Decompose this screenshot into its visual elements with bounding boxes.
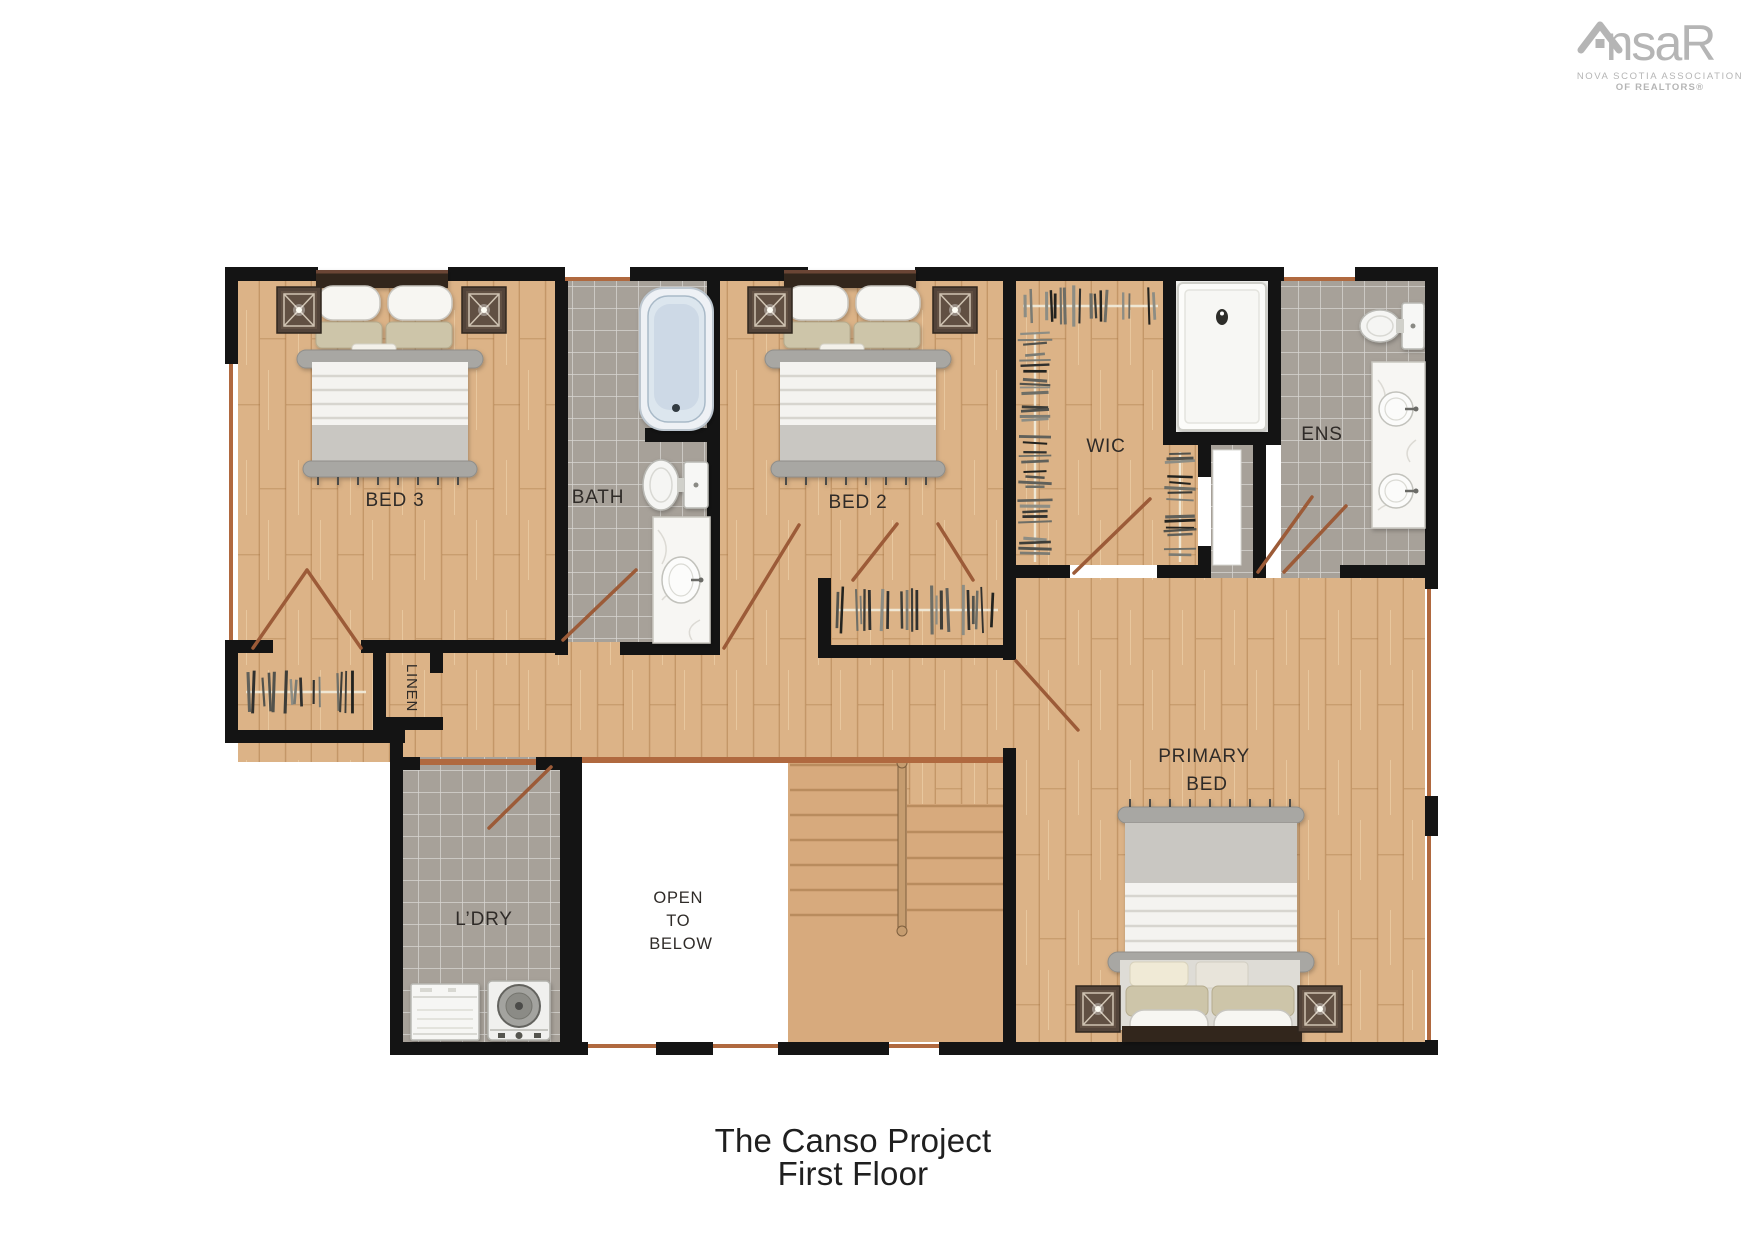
bathtub-icon (640, 288, 713, 430)
nightstand-icon (277, 287, 321, 333)
title-line2: First Floor (778, 1155, 929, 1192)
floor-plan-page: BED 3 BATH BED 2 WIC ENS LINEN L’DRY OPE… (0, 0, 1754, 1240)
washer-icon (411, 984, 479, 1040)
stair-opening-edge (582, 757, 1003, 763)
label-ens: ENS (1301, 424, 1342, 445)
label-ldry: L’DRY (455, 909, 513, 930)
nightstand-icon (1076, 986, 1120, 1032)
label-bed2: BED 2 (829, 492, 888, 513)
logo-text-right: aR (1654, 18, 1714, 68)
nightstand-icon (462, 287, 506, 333)
bed-icon-primary (1108, 799, 1314, 1042)
label-wic: WIC (1086, 436, 1125, 457)
sink-vanity-bath (653, 517, 710, 643)
logo-subline1: NOVA SCOTIA ASSOCIATION (1577, 71, 1743, 82)
floor-plan-svg: BED 3 BATH BED 2 WIC ENS LINEN L’DRY OPE… (0, 0, 1754, 1240)
stair-railing (898, 762, 906, 932)
house-icon (1577, 18, 1623, 54)
title-line1: The Canso Project (715, 1122, 992, 1159)
shower-icon (1178, 283, 1266, 430)
nightstand-icon (748, 287, 792, 333)
sink-vanity-ens (1372, 362, 1425, 528)
nsar-logo-brand: ns aR (1606, 18, 1715, 68)
nsar-logo: ns aR NOVA SCOTIA ASSOCIATION OF REALTOR… (1578, 18, 1742, 93)
nightstand-icon (1298, 986, 1342, 1032)
label-bed3: BED 3 (366, 490, 425, 511)
pocket-door (1213, 450, 1241, 565)
logo-subline2: OF REALTORS® (1616, 82, 1705, 93)
nightstand-icon (933, 287, 977, 333)
label-bath: BATH (572, 487, 624, 508)
dryer-icon (488, 981, 550, 1040)
label-linen: LINEN (403, 664, 420, 712)
